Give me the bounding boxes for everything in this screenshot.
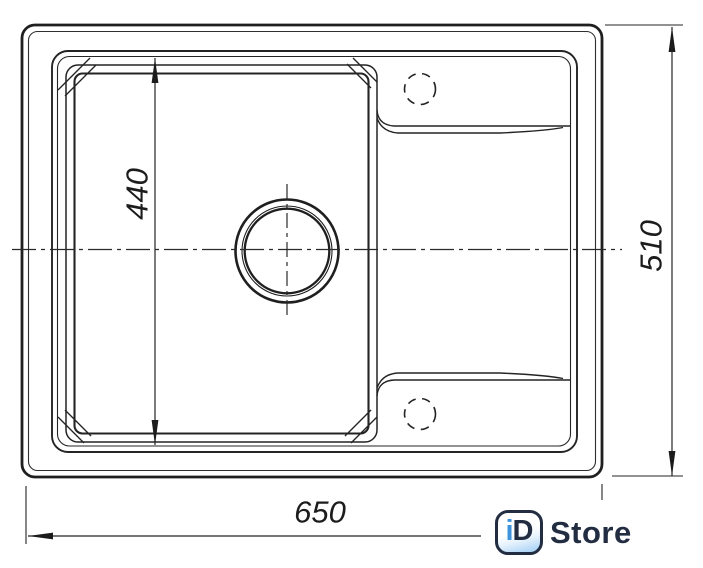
drainer-dividers [377,110,570,396]
dimension-510: 510 [605,25,683,476]
dim-label-510: 510 [634,220,669,272]
idstore-badge-icon: iD [495,510,543,555]
centerlines [12,184,622,320]
dim-label-440: 440 [120,168,155,220]
dim-label-650: 650 [294,495,346,530]
idstore-logo: iD Store [495,510,632,555]
sink-technical-drawing-page: 440 510 650 iD Store [0,0,703,568]
arrowhead-down [669,451,676,476]
sink-rim [52,51,577,452]
drainer-bottom-divider [377,373,570,396]
faucet-hole-bottom [405,399,436,430]
faucet-hole-top [405,74,436,105]
drainer-top-divider [377,110,570,133]
arrowhead-up [152,58,159,83]
sink-drawing-canvas: 440 510 650 [0,0,703,568]
arrowhead-left [28,533,53,540]
logo-letter-d: D [513,517,533,546]
logo-letter-i: i [505,517,512,546]
dimension-440: 440 [120,58,159,445]
logo-store-text: Store [550,515,632,551]
arrowhead-up [669,27,676,52]
worktop-outline [22,25,602,477]
